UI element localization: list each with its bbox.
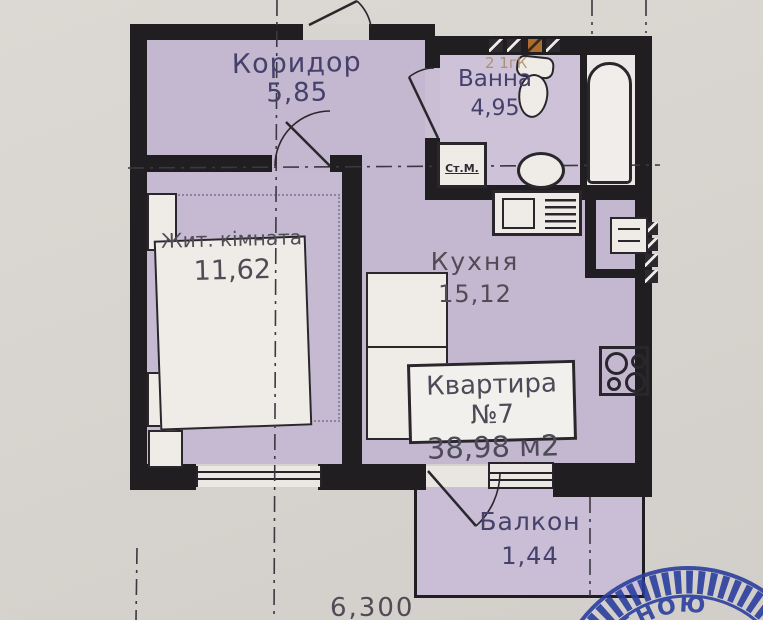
plan-linework: ЕЖЕНОЮ: [0, 0, 763, 620]
room-name: Балкон: [465, 508, 595, 537]
room-name: Коридор: [231, 47, 362, 80]
boiler: [610, 217, 648, 254]
room-area: 4,95: [440, 96, 550, 121]
washing-machine-label: Ст.М.: [445, 162, 479, 175]
axis-line: [128, 165, 660, 168]
room-label-balcony: Балкон 1,44: [465, 508, 595, 570]
room-label-bathroom: Ванна 4,95: [440, 66, 550, 122]
room-label-corridor: Коридор 5,85: [231, 47, 362, 110]
bathtub: [587, 62, 632, 184]
room-area: 5,85: [232, 78, 363, 110]
room-area: 1,44: [465, 543, 595, 571]
approval-stamp: ЕЖЕНОЮ: [554, 568, 763, 620]
apartment-label-box: Квартира №7 38,98 м2: [407, 360, 577, 444]
bathroom-door: [409, 68, 438, 138]
entrance-door: [309, 1, 371, 26]
room-name: Жит. кімната: [151, 226, 312, 253]
dimension-label: 6,300: [330, 594, 414, 620]
axis-line: [136, 548, 137, 620]
room-area: 11,62: [152, 253, 313, 288]
room-label-living: Жит. кімната 11,62: [151, 226, 312, 288]
room-label-kitchen: Кухня 15,12: [415, 248, 535, 308]
washing-machine: Ст.М.: [437, 142, 487, 188]
floorplan-photo: Ст.М.: [0, 0, 763, 620]
bathroom-sink: [517, 152, 565, 189]
living-door: [275, 111, 330, 166]
room-area: 15,12: [415, 281, 535, 309]
apartment-area: 38,98 м2: [412, 428, 575, 466]
apartment-title: Квартира №7: [410, 368, 574, 432]
door-tag: 2 1гК: [485, 55, 527, 72]
room-name: Кухня: [415, 248, 535, 277]
